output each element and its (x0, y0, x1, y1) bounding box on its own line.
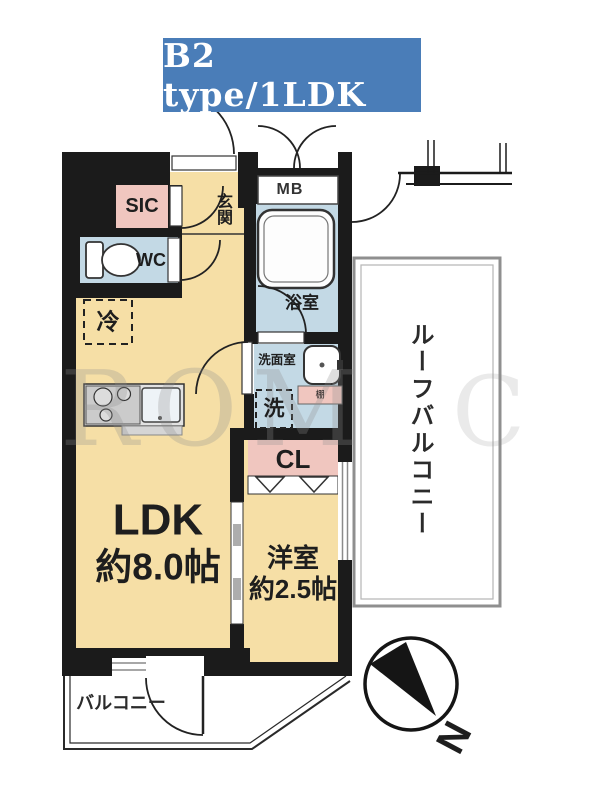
stove (86, 386, 140, 424)
western-room-size-label: 約2.5帖 (249, 574, 337, 605)
bathtub (258, 210, 334, 288)
window-ldk-south (112, 658, 146, 676)
wc-door-leaf (168, 238, 180, 282)
washer-label: 洗 (264, 399, 285, 420)
entrance-door-leaf (172, 156, 236, 170)
bathroom-label: 浴室 (285, 295, 319, 312)
window-western-room-east (338, 462, 352, 560)
floor-plan-page: B2 type/1LDK ROM C (0, 0, 600, 800)
balcony-door-opening (146, 656, 204, 676)
refrigerator-label: 冷 (97, 311, 120, 334)
ldk-label: LDK (95, 495, 220, 546)
floor-plan-canvas (0, 0, 600, 800)
washroom-label: 洗面室 (258, 354, 296, 367)
sic-label: SIC (125, 196, 158, 216)
washbasin (304, 346, 343, 384)
toilet-icon (86, 242, 140, 278)
sic-door-leaf (170, 186, 182, 226)
plan-type-banner: B2 type/1LDK (163, 38, 421, 112)
accordion-door (248, 476, 338, 494)
western-room-label-block: 洋室 約2.5帖 (249, 543, 337, 605)
western-room-label: 洋室 (249, 543, 337, 574)
entrance-label: 玄関 (214, 193, 230, 225)
wc-label: WC (136, 251, 166, 269)
roof-balcony-label: ルーフバルコニー (407, 322, 431, 538)
corridor-railing (398, 140, 512, 186)
closet-label: CL (276, 446, 311, 472)
sliding-door (231, 502, 243, 624)
washroom-door-leaf (242, 342, 252, 394)
meter-box-label: MB (277, 182, 304, 198)
shelf-label: 棚 (315, 391, 324, 400)
corridor-door-arc (352, 174, 400, 222)
ldk-size-label: 約8.0帖 (95, 546, 220, 589)
ldk-label-block: LDK 約8.0帖 (95, 495, 220, 588)
plan-type-label: B2 type/1LDK (163, 36, 421, 114)
balcony-label: バルコニー (76, 694, 166, 712)
bathroom-door-leaf (258, 332, 304, 343)
